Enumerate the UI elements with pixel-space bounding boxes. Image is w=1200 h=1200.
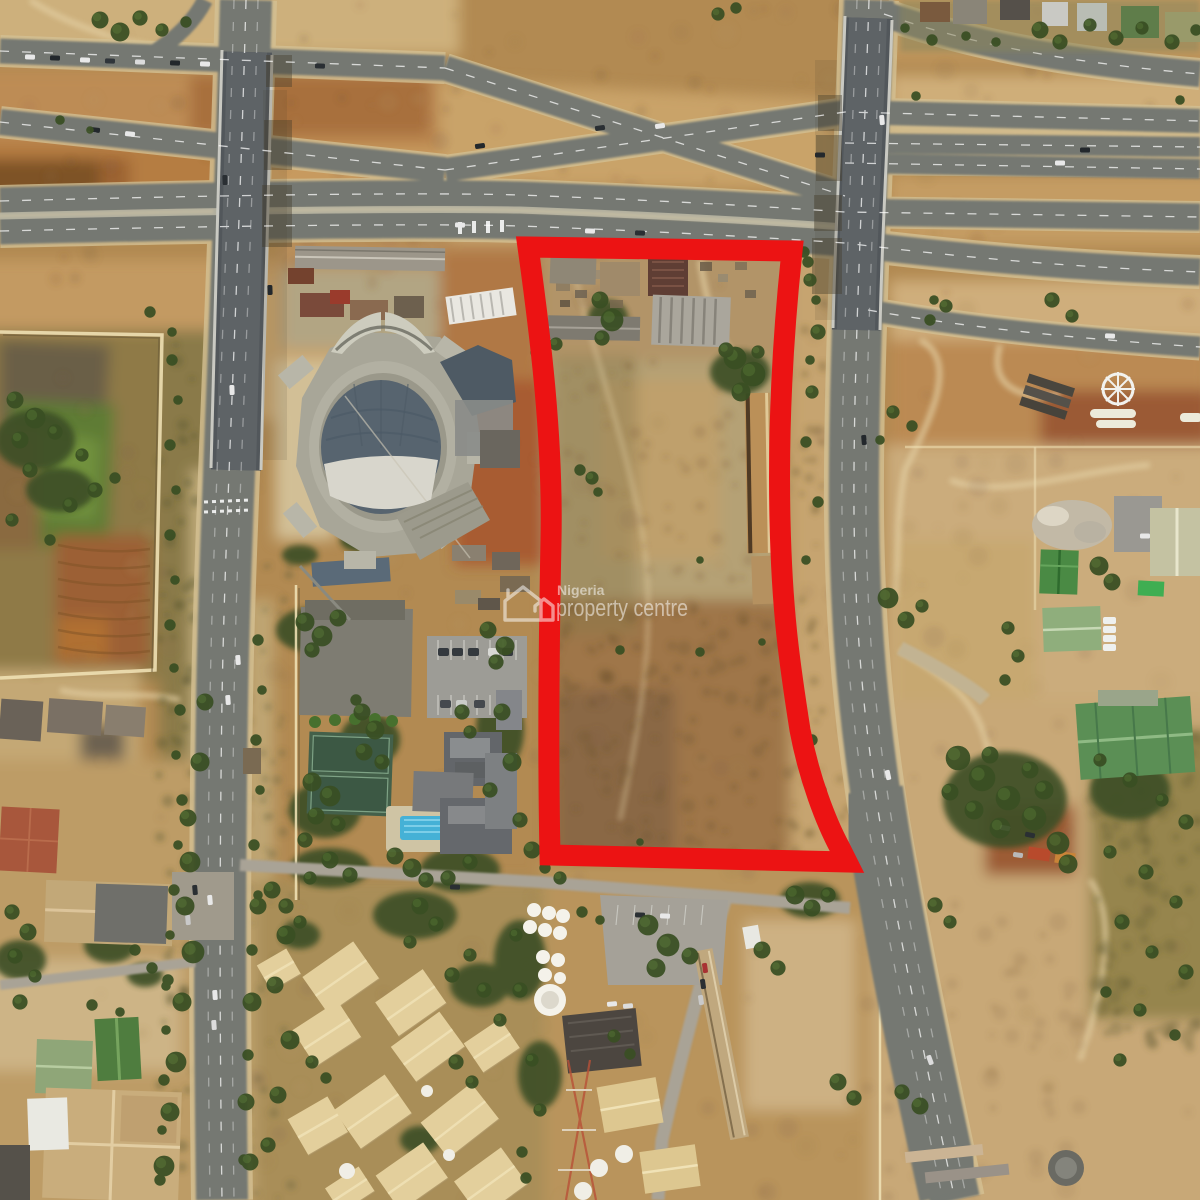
- svg-text:property centre: property centre: [556, 595, 688, 622]
